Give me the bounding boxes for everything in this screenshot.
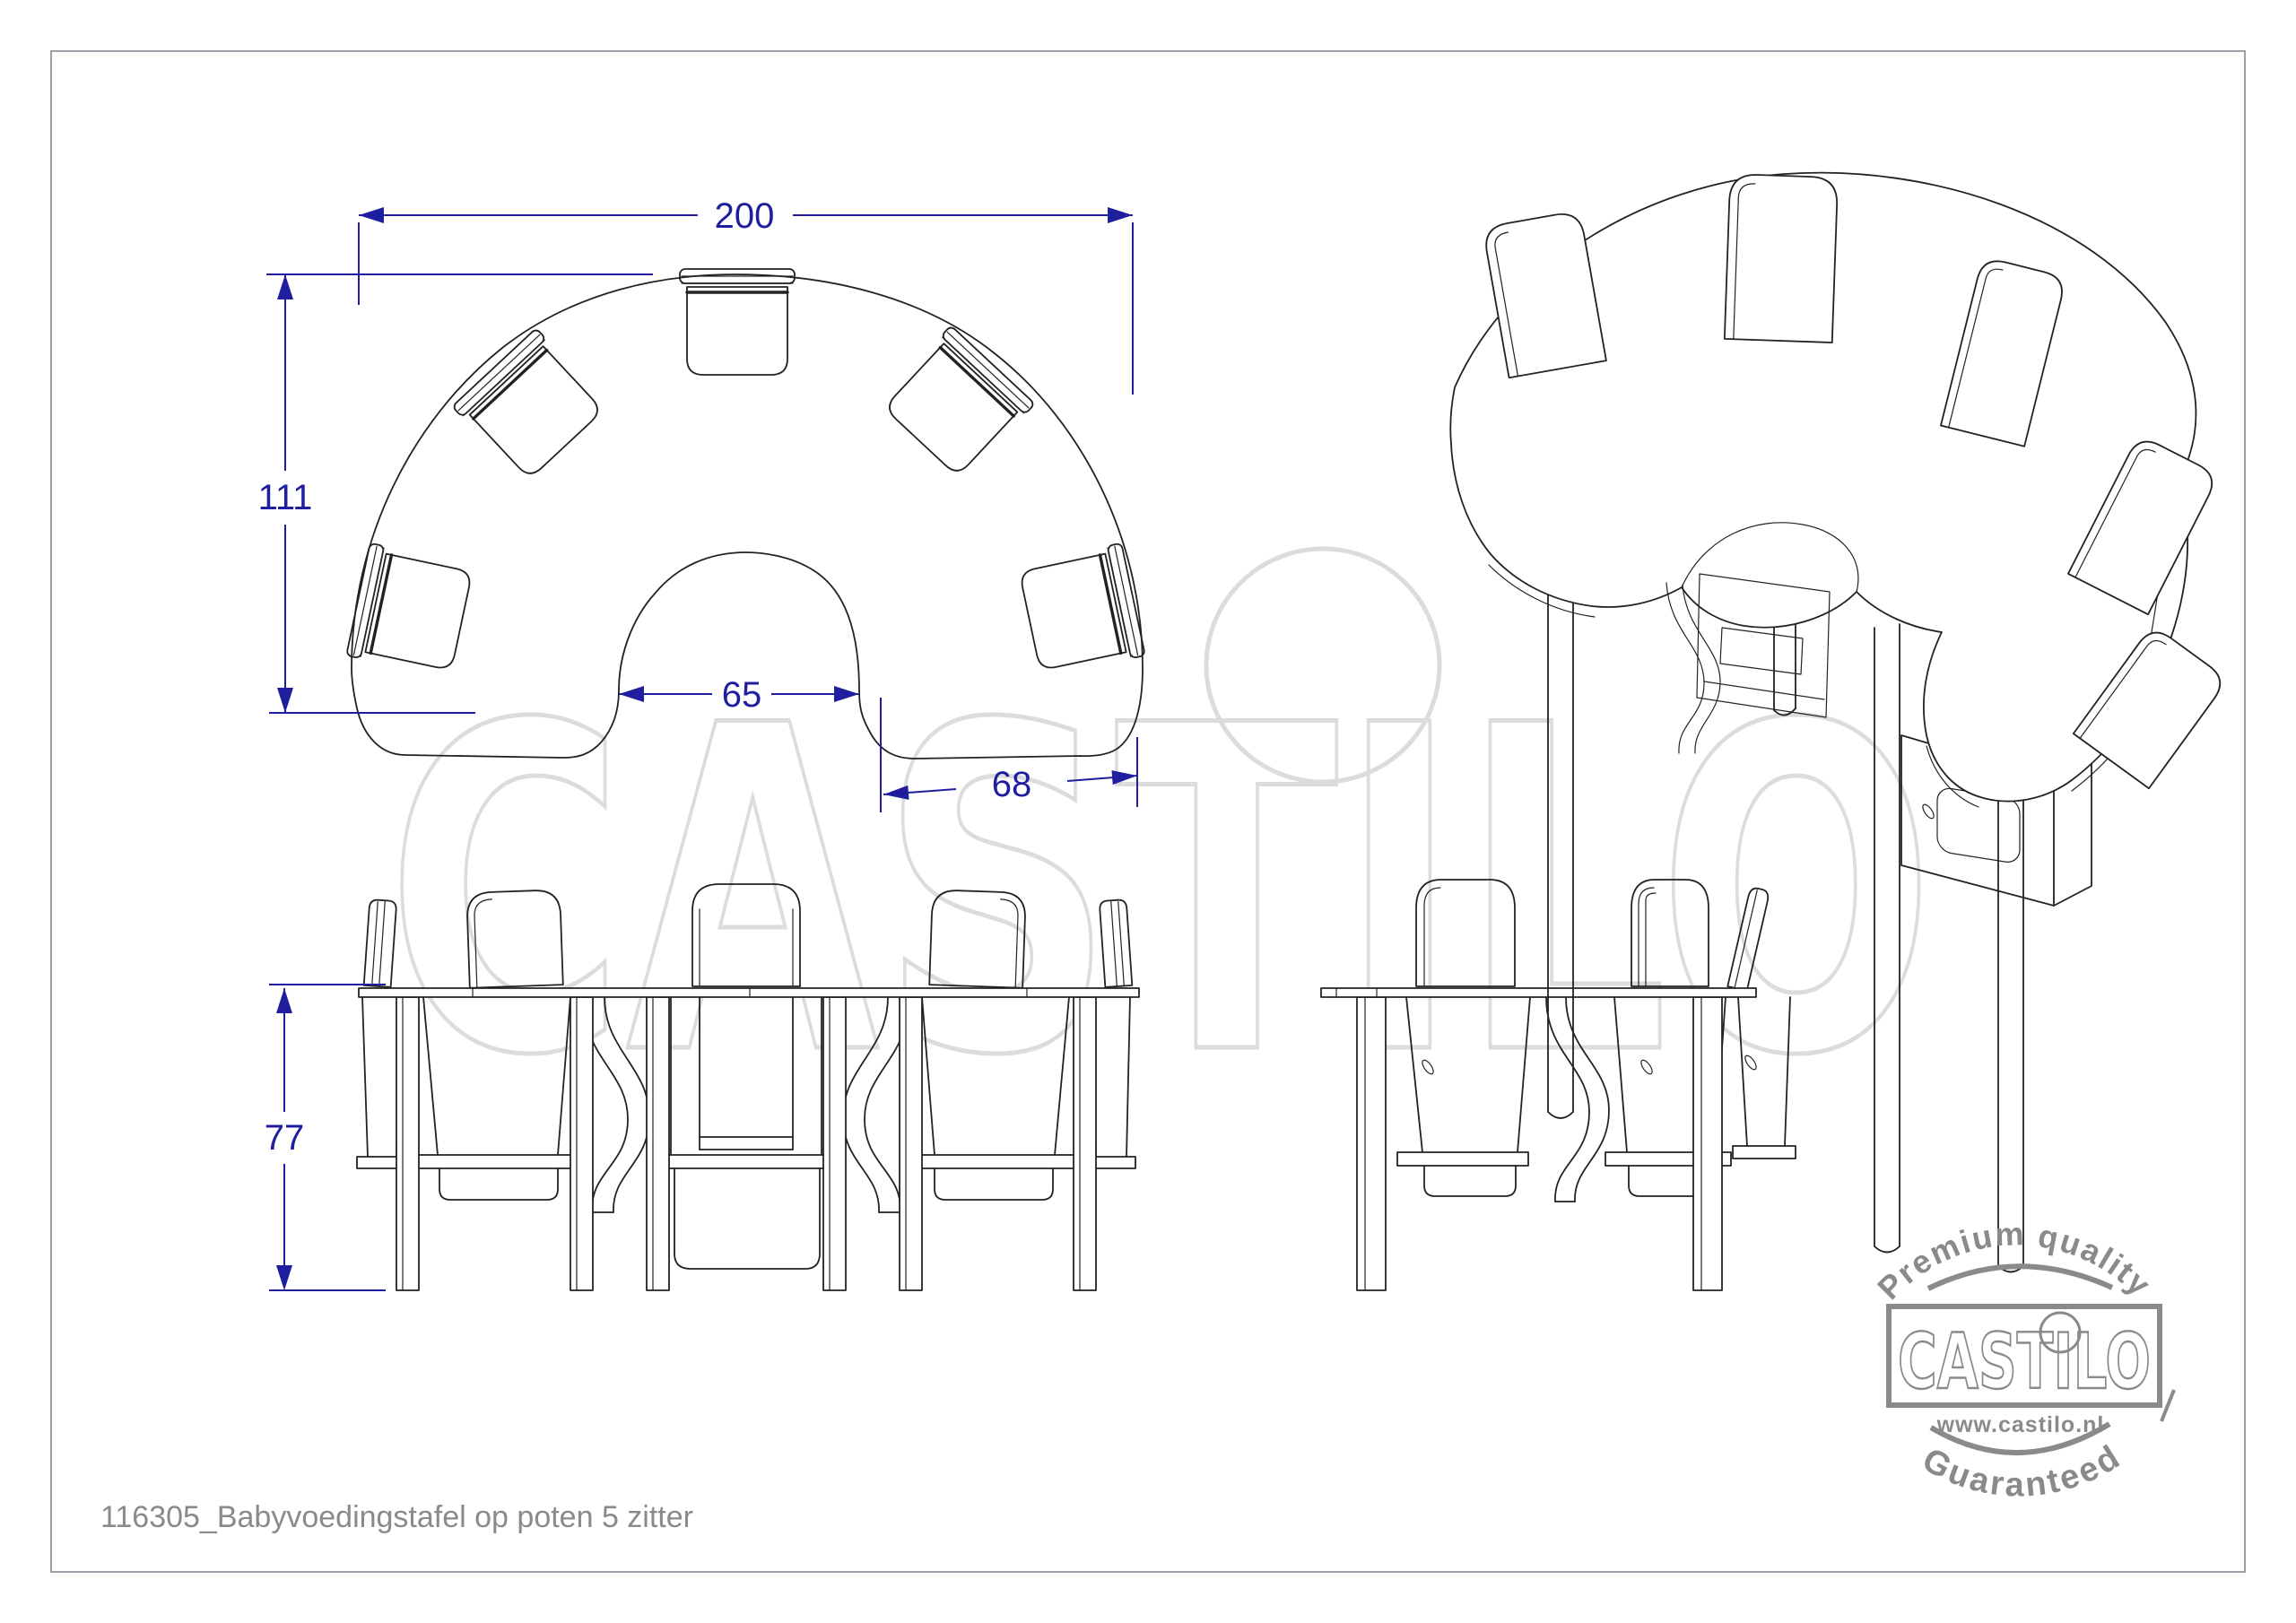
stamp-url: www.castilo.nl bbox=[1936, 1412, 2105, 1437]
drawing-title: 116305_Babyvoedingstafel op poten 5 zitt… bbox=[100, 1500, 693, 1534]
dim-overall-depth-value: 111 bbox=[258, 478, 313, 517]
dim-table-height-value: 77 bbox=[265, 1118, 305, 1158]
plan-seat-upper-left bbox=[452, 328, 608, 484]
dim-overall-width-value: 200 bbox=[715, 196, 775, 236]
plan-seat-top bbox=[680, 269, 795, 375]
stamp-guaranteed: Guaranteed bbox=[1916, 1437, 2128, 1505]
stamp-top-swoosh bbox=[1928, 1266, 2112, 1289]
castilo-stamp: Premium quality Guaranteed CASTILO www.c… bbox=[1867, 1215, 2174, 1504]
stamp-premium-quality: Premium quality bbox=[1870, 1215, 2159, 1306]
cad-drawing-canvas: CASTILO bbox=[0, 0, 2296, 1623]
dim-seat-ring-depth-value: 68 bbox=[992, 765, 1032, 804]
front-tabletop bbox=[359, 988, 1139, 997]
dim-inner-opening-value: 65 bbox=[722, 675, 762, 715]
dim-overall-width: 200 bbox=[359, 196, 1133, 395]
plan-seat-upper-right bbox=[879, 325, 1035, 482]
stamp-stray-mark bbox=[2161, 1390, 2174, 1421]
stamp-logo-text: CASTILO bbox=[1898, 1317, 2151, 1407]
drawing-sheet: CASTILO bbox=[0, 0, 2296, 1623]
side-tabletop bbox=[1321, 988, 1756, 997]
